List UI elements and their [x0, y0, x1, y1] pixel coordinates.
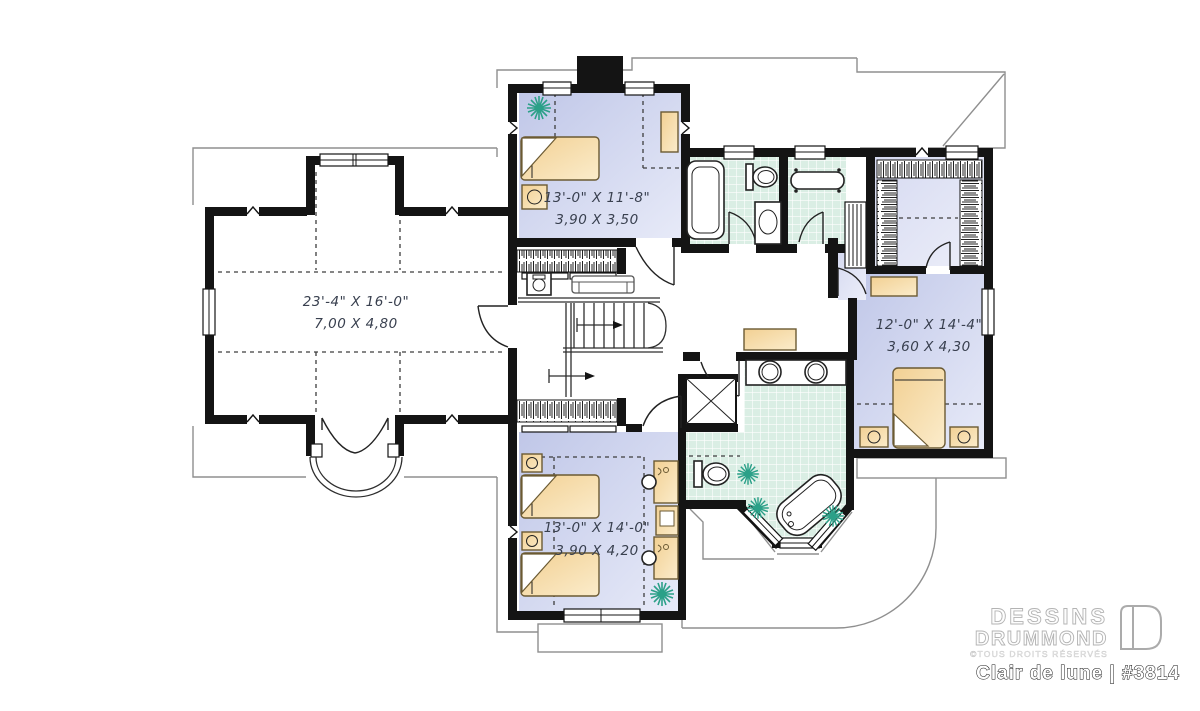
bedroom2-dim-imperial: 13'-0" X 11'-8"	[544, 190, 650, 206]
drummond-d-icon	[1121, 606, 1161, 649]
walkin-window	[946, 146, 978, 159]
bed-master	[893, 368, 945, 448]
bedroom3-door	[643, 396, 681, 428]
computer-desk-bedroom3	[656, 506, 678, 535]
nightstand-bedroom3-bottom	[522, 532, 542, 550]
bonus-room-door	[478, 306, 508, 347]
balcony	[310, 457, 402, 497]
bedroom3-dim-imperial: 13'-0" X 14'-0"	[544, 520, 650, 536]
bench-master	[871, 277, 917, 296]
bath-window	[724, 146, 754, 159]
laundry-counter	[791, 168, 844, 193]
logo-block: DESSINS DRUMMOND ©TOUS DROITS RÉSERVÉS C…	[970, 604, 1180, 684]
bedroom2-window-left	[543, 82, 571, 95]
bed-bedroom3-top	[521, 475, 599, 518]
bedroom2-window-right	[625, 82, 654, 95]
bedroom3-closet	[517, 400, 617, 432]
master-side-window	[982, 289, 994, 335]
toilet-master	[694, 461, 729, 487]
brand-line1: DESSINS	[990, 604, 1108, 629]
nightstand-master-left	[860, 427, 888, 447]
chimney	[577, 56, 623, 86]
nightstand-bedroom3-top	[522, 454, 542, 472]
bonus-left-window	[203, 289, 215, 335]
bed-bedroom3-bottom	[521, 553, 599, 596]
double-vanity	[746, 360, 846, 385]
dresser-bedroom2	[661, 112, 678, 152]
bonus-top-window	[320, 154, 388, 166]
bedroom3-window	[564, 609, 640, 622]
bonus-dim-imperial: 23'-4" X 16'-0"	[303, 294, 409, 310]
linen-closet	[845, 202, 866, 268]
roof-bay-bedroom3	[538, 624, 662, 652]
staircase	[518, 298, 666, 397]
bedroom2-dim-metric: 3,90 X 3,50	[555, 212, 638, 228]
bedroom2-door	[636, 247, 674, 285]
floor-plan-page: 23'-4" X 16'-0" 7,00 X 4,80 13'-0" X 11'…	[0, 0, 1200, 711]
bathtub-main	[687, 161, 724, 239]
sofa	[572, 276, 634, 293]
brand-line2: DRUMMOND	[975, 628, 1108, 650]
bonus-dim-metric: 7,00 X 4,80	[314, 316, 397, 332]
roof-top-right	[857, 58, 1005, 148]
nightstand-master-right	[950, 427, 978, 447]
bedroom3-dim-metric: 3,90 X 4,20	[555, 543, 638, 559]
floor-plan-drawing: 23'-4" X 16'-0" 7,00 X 4,80 13'-0" X 11'…	[0, 0, 1200, 711]
sill-right	[857, 458, 1006, 478]
copyright-line: ©TOUS DROITS RÉSERVÉS	[970, 649, 1108, 659]
shower	[686, 378, 736, 424]
roof-left-wing-bottom	[193, 426, 538, 632]
wash-stand	[527, 273, 551, 295]
plan-title: Clair de lune | #3814	[976, 663, 1180, 684]
french-doors-bonus	[310, 418, 402, 497]
stair-arrow-down	[549, 369, 595, 383]
vanity-main-bath	[755, 202, 781, 244]
master-dim-imperial: 12'-0" X 14'-4"	[876, 317, 982, 333]
bed-bedroom2	[521, 137, 599, 180]
bench-hall	[744, 329, 796, 350]
master-dim-metric: 3,60 X 4,30	[887, 339, 970, 355]
laundry-window	[795, 146, 825, 159]
